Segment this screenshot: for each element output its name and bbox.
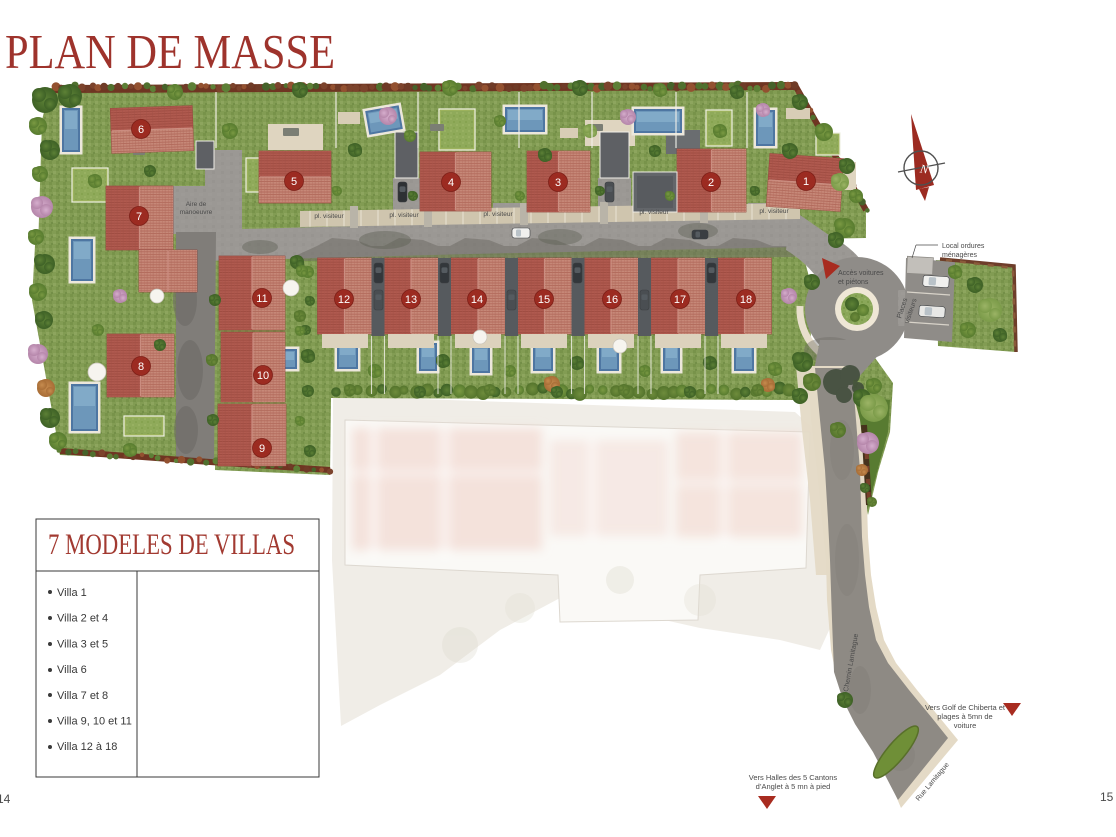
svg-text:Villa 1: Villa 1: [57, 587, 87, 599]
svg-text:pl. visiteur: pl. visiteur: [483, 211, 513, 218]
svg-text:7 MODELES DE VILLAS: 7 MODELES DE VILLAS: [48, 528, 295, 561]
svg-text:18: 18: [740, 294, 752, 306]
svg-text:5: 5: [291, 176, 297, 188]
svg-text:4: 4: [448, 177, 454, 189]
svg-text:pl. visiteur: pl. visiteur: [314, 213, 344, 220]
svg-text:Villa 6: Villa 6: [57, 664, 87, 676]
svg-text:6: 6: [138, 124, 144, 136]
svg-text:Local ordures: Local ordures: [942, 243, 985, 250]
svg-text:Villa 7 et 8: Villa 7 et 8: [57, 690, 108, 702]
svg-text:Villa 3 et 5: Villa 3 et 5: [57, 638, 108, 650]
svg-text:7: 7: [136, 211, 142, 223]
svg-text:8: 8: [138, 361, 144, 373]
svg-text:Aire de: Aire de: [186, 201, 207, 208]
svg-text:pl. visiteur: pl. visiteur: [759, 208, 789, 215]
svg-text:Vers Halles des 5 Cantons: Vers Halles des 5 Cantons: [749, 773, 838, 782]
svg-text:PLAN DE MASSE: PLAN DE MASSE: [5, 24, 335, 79]
svg-text:d’Anglet à 5 mn à pied: d’Anglet à 5 mn à pied: [756, 782, 831, 791]
svg-text:et piétons: et piétons: [838, 279, 869, 286]
svg-text:ménagères: ménagères: [942, 252, 978, 259]
svg-text:16: 16: [606, 294, 618, 306]
svg-text:3: 3: [555, 177, 561, 189]
svg-text:1: 1: [803, 176, 809, 188]
svg-text:17: 17: [674, 294, 686, 306]
svg-text:15: 15: [1100, 790, 1114, 804]
svg-text:15: 15: [538, 294, 550, 306]
svg-text:pl. visiteur: pl. visiteur: [389, 212, 419, 219]
svg-text:pl. visiteur: pl. visiteur: [639, 209, 669, 216]
svg-text:2: 2: [708, 177, 714, 189]
svg-text:Vers Golf de Chiberta et: Vers Golf de Chiberta et: [925, 703, 1006, 712]
svg-text:Villa 2 et 4: Villa 2 et 4: [57, 613, 108, 625]
svg-text:Accès voitures: Accès voitures: [838, 270, 884, 277]
svg-text:12: 12: [338, 294, 350, 306]
svg-text:voiture: voiture: [954, 721, 977, 730]
svg-text:manoeuvre: manoeuvre: [180, 209, 213, 216]
svg-text:11: 11: [256, 293, 267, 305]
svg-text:10: 10: [257, 370, 269, 382]
svg-text:9: 9: [259, 443, 265, 455]
svg-text:plages à 5mn de: plages à 5mn de: [937, 712, 992, 721]
svg-text:13: 13: [405, 294, 417, 306]
svg-text:14: 14: [0, 792, 11, 806]
svg-text:14: 14: [471, 294, 483, 306]
svg-text:Villa 9, 10 et 11: Villa 9, 10 et 11: [57, 716, 132, 728]
svg-text:Villa 12 à 18: Villa 12 à 18: [57, 741, 117, 753]
